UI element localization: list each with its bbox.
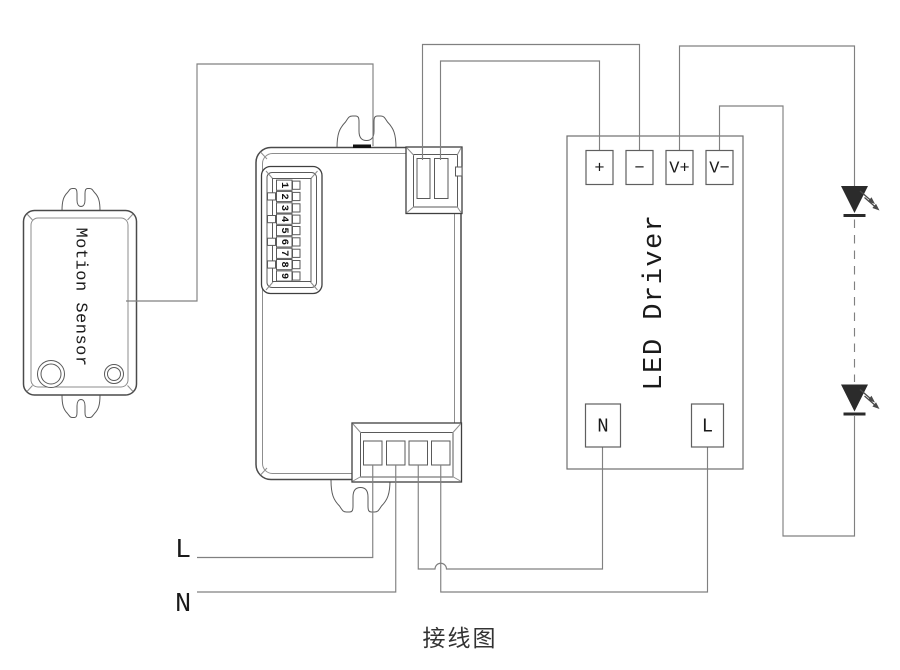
dip-slider[interactable] bbox=[293, 192, 301, 200]
sensor-mount-tab-bottom bbox=[62, 395, 100, 418]
dip-slider[interactable] bbox=[293, 238, 301, 246]
mains-live-label: L bbox=[175, 536, 191, 566]
mains-neutral-label: N bbox=[175, 590, 191, 620]
dip-digit-label: 3 bbox=[278, 205, 290, 211]
bottom-connector-terminal-4[interactable] bbox=[432, 441, 451, 465]
led-driver-label: LED Driver bbox=[640, 213, 670, 390]
controller-bottom-connector bbox=[352, 423, 462, 482]
dip-digit-label: 7 bbox=[278, 250, 290, 256]
terminal-vminus-label: V− bbox=[709, 160, 729, 179]
dip-row-2[interactable]: 2 bbox=[268, 191, 301, 201]
dip-row-1[interactable]: 1 bbox=[277, 180, 301, 190]
wires bbox=[126, 45, 855, 593]
dip-row-6[interactable]: 6 bbox=[268, 237, 301, 247]
dip-row-3[interactable]: 3 bbox=[277, 203, 301, 213]
sensor-plug-slot bbox=[353, 145, 371, 149]
led-1 bbox=[841, 186, 880, 216]
diagram-caption: 接线图 bbox=[423, 626, 498, 652]
motion-sensor-label: Motion Sensor bbox=[71, 227, 90, 366]
dip-switch: 1 2 3 4 bbox=[262, 167, 323, 294]
terminal-live-label: L bbox=[702, 416, 713, 438]
dip-row-9[interactable]: 9 bbox=[277, 271, 301, 281]
dip-digit-label: 1 bbox=[278, 182, 290, 188]
terminal-minus-label: − bbox=[634, 160, 644, 179]
top-connector-side-tab bbox=[456, 167, 463, 176]
dip-digit-label: 2 bbox=[278, 193, 290, 199]
sensor-lens-large-inner bbox=[41, 364, 61, 384]
terminal-vplus-label: V+ bbox=[669, 160, 689, 179]
dip-digit-label: 5 bbox=[278, 227, 290, 233]
led-2 bbox=[841, 385, 880, 415]
controller-mount-tab-top bbox=[337, 116, 396, 148]
motion-sensor: Motion Sensor bbox=[24, 189, 137, 418]
top-connector-slot-1[interactable] bbox=[417, 159, 430, 199]
dip-row-4[interactable]: 4 bbox=[268, 214, 301, 224]
dip-digit-label: 6 bbox=[278, 239, 290, 245]
wiring-diagram: Motion Sensor 1 bbox=[0, 0, 900, 670]
controller-mount-tab-bottom bbox=[331, 480, 390, 512]
terminal-neutral-label: N bbox=[597, 416, 608, 438]
dip-digit-label: 4 bbox=[278, 216, 290, 222]
dip-slider[interactable] bbox=[293, 204, 301, 212]
wiring-diagram-canvas: Motion Sensor 1 bbox=[0, 0, 900, 670]
dip-row-5[interactable]: 5 bbox=[277, 226, 301, 236]
dip-row-7[interactable]: 7 bbox=[277, 248, 301, 258]
dip-slider[interactable] bbox=[293, 272, 301, 280]
bottom-connector-terminal-1[interactable] bbox=[364, 441, 383, 465]
dip-slider[interactable] bbox=[293, 181, 301, 189]
controller-top-connector bbox=[406, 147, 462, 214]
terminal-plus-label: + bbox=[594, 160, 604, 179]
dip-slider[interactable] bbox=[293, 261, 301, 269]
dip-row-8[interactable]: 8 bbox=[268, 260, 301, 270]
controller: 1 2 3 4 bbox=[256, 116, 462, 512]
dip-nub[interactable] bbox=[268, 216, 276, 223]
dip-nub[interactable] bbox=[268, 238, 276, 245]
bottom-connector-terminal-2[interactable] bbox=[387, 441, 406, 465]
dip-digit-label: 8 bbox=[278, 261, 290, 267]
dip-slider[interactable] bbox=[293, 227, 301, 235]
dip-digit-label: 9 bbox=[278, 273, 290, 279]
led-diode-triangle bbox=[841, 186, 868, 213]
top-connector-slot-2[interactable] bbox=[435, 159, 449, 199]
sensor-lens-small-inner bbox=[108, 368, 121, 381]
sensor-mount-tab-top bbox=[62, 189, 100, 212]
dip-nub[interactable] bbox=[268, 193, 276, 200]
dip-slider[interactable] bbox=[293, 249, 301, 257]
led-string bbox=[841, 186, 880, 414]
dip-nub[interactable] bbox=[268, 261, 276, 268]
dip-slider[interactable] bbox=[293, 215, 301, 223]
bottom-connector-terminal-3[interactable] bbox=[409, 441, 428, 465]
mains-labels: L N bbox=[175, 536, 191, 620]
